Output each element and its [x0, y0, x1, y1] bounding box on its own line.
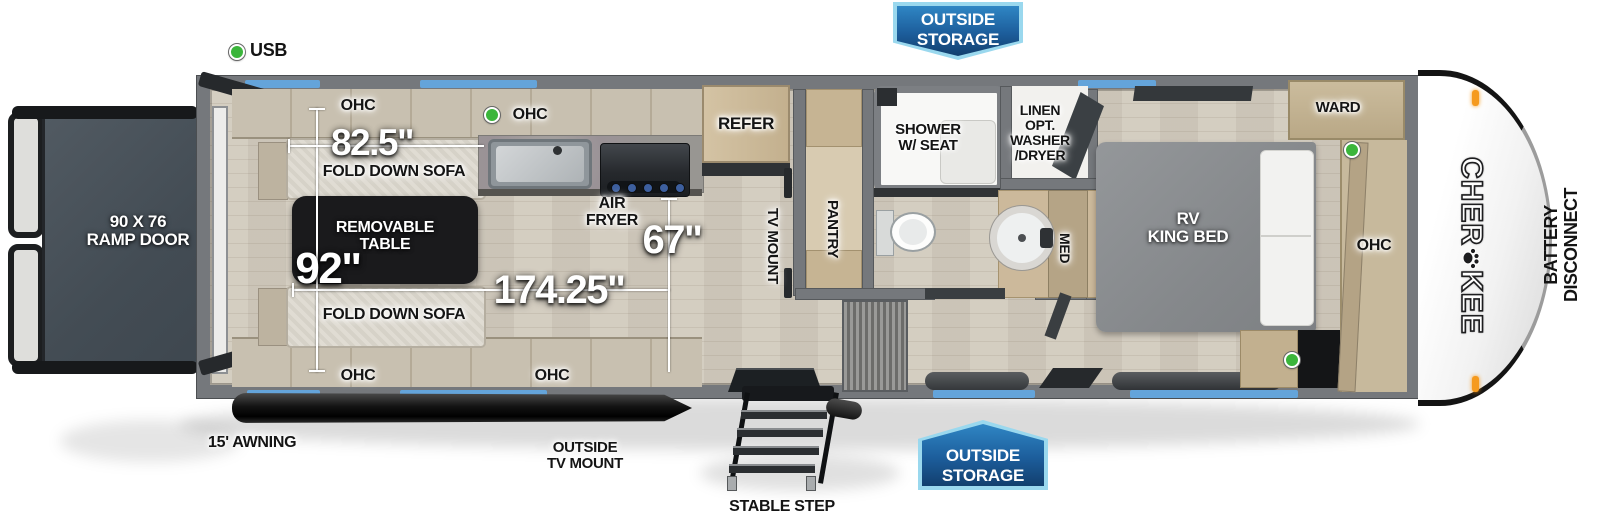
awning-label: 15' AWNING	[208, 434, 334, 451]
dim-tick	[309, 370, 325, 372]
range-knob	[627, 183, 637, 193]
tv-mount-wall	[793, 89, 806, 296]
outside-tv-mount-label: OUTSIDE TV MOUNT	[525, 440, 645, 472]
dim-tick	[661, 198, 677, 200]
rear-door-frame	[212, 106, 228, 374]
paw-icon	[1454, 246, 1488, 270]
dim-82-5: 82.5"	[302, 122, 442, 164]
ohc-label-bottom-right: OHC	[522, 367, 582, 384]
kitchen-sink-basin	[496, 146, 584, 182]
step-tread	[733, 446, 819, 455]
usb-dot-icon	[1284, 352, 1300, 368]
window-bottom-3	[933, 390, 1035, 398]
bathroom-sink-drain	[1018, 234, 1026, 242]
entry-door	[842, 300, 908, 392]
step-tread	[729, 464, 815, 473]
fold-down-sofa-top-label: FOLD DOWN SOFA	[304, 163, 484, 180]
dim-174-25: 174.25"	[478, 268, 640, 313]
bath-hall-wall-left	[795, 288, 935, 300]
usb-label: USB	[250, 41, 294, 60]
brand-logo-part1: CHER	[1455, 157, 1488, 246]
tv-mount-label: TV MOUNT	[764, 196, 780, 296]
outside-storage-top-label: OUTSIDE STORAGE	[893, 10, 1023, 49]
pantry-right-wall	[862, 89, 874, 296]
step-foot-right	[806, 476, 816, 491]
ramp-door-bottom-rail	[12, 361, 198, 374]
sink-drain	[553, 146, 562, 155]
sofa-bottom-end-table	[258, 288, 288, 346]
step-platform	[742, 386, 834, 401]
awning-tube	[232, 393, 692, 423]
step-tread	[737, 428, 823, 437]
pantry-label: PANTRY	[824, 182, 840, 277]
range-knob	[675, 183, 685, 193]
pantry-shelf-top	[806, 89, 862, 147]
linen-bottom-wall	[1000, 178, 1098, 190]
bathroom-faucet	[1040, 228, 1053, 248]
ramp-rail-panel-top	[8, 112, 44, 238]
ramp-door-label: 90 X 76 RAMP DOOR	[58, 213, 218, 250]
toilet-lid	[899, 219, 927, 245]
range-knob	[611, 183, 621, 193]
bath-door-open	[925, 288, 1005, 299]
dim-92: 92"	[288, 244, 368, 294]
dim-tick	[309, 108, 325, 110]
hall-bench	[925, 372, 1029, 390]
med-label: MED	[1057, 220, 1072, 276]
usb-dot-icon	[1344, 142, 1360, 158]
ward-label: WARD	[1300, 100, 1376, 116]
rv-king-bed-label: RV KING BED	[1128, 210, 1248, 247]
sofa-top-end-table	[258, 142, 288, 200]
step-foot-left	[727, 476, 737, 491]
ohc-label-bottom-left: OHC	[328, 367, 388, 384]
usb-dot-icon	[484, 107, 500, 123]
floorplan-diagram: 90 X 76 RAMP DOOR REMOVABLE TABLE	[0, 0, 1600, 531]
bedroom-tv-shelf	[1133, 86, 1253, 101]
bedroom-ohc-label: OHC	[1350, 237, 1398, 254]
outside-storage-banner-top: OUTSIDE STORAGE	[893, 2, 1023, 60]
refer-label: REFER	[708, 115, 784, 133]
marker-light-top	[1472, 90, 1479, 106]
window-bottom-4	[1130, 390, 1298, 398]
range-knob	[643, 183, 653, 193]
shower-head-unit	[877, 88, 897, 106]
dim-tick	[288, 139, 290, 153]
outside-storage-bottom-label: OUTSIDE STORAGE	[918, 446, 1048, 485]
shower-label: SHOWER W/ SEAT	[868, 122, 988, 154]
brand-logo-part2: KEE	[1455, 270, 1488, 335]
bed-pillows	[1260, 150, 1314, 326]
pillow-seam	[1261, 235, 1311, 237]
window-top-2	[420, 80, 537, 88]
stable-step-label: STABLE STEP	[712, 498, 852, 515]
tv-bracket-upper	[784, 168, 792, 198]
nightstand-cabinet	[1298, 330, 1340, 388]
usb-dot-icon	[229, 44, 245, 60]
ohc-label-top-left: OHC	[328, 97, 388, 114]
battery-disconnect-label: BATTERY DISCONNECT	[1542, 175, 1588, 315]
refrigerator-base	[702, 163, 790, 176]
shower-track	[874, 188, 1004, 197]
step-tread	[741, 410, 827, 419]
tv-bracket-lower	[784, 268, 792, 298]
ramp-rail-panel-bottom	[8, 244, 44, 367]
linen-label: LINEN OPT. WASHER /DRYER	[995, 103, 1085, 163]
range-knob	[659, 183, 669, 193]
brand-logo: CHERKEE	[1444, 118, 1488, 374]
ohc-label-top-right: OHC	[505, 106, 555, 123]
air-fryer-label: AIR FRYER	[572, 195, 652, 229]
fold-down-sofa-bottom-label: FOLD DOWN SOFA	[304, 306, 484, 323]
marker-light-bottom	[1472, 376, 1479, 392]
ramp-door-top-rail	[12, 106, 198, 119]
